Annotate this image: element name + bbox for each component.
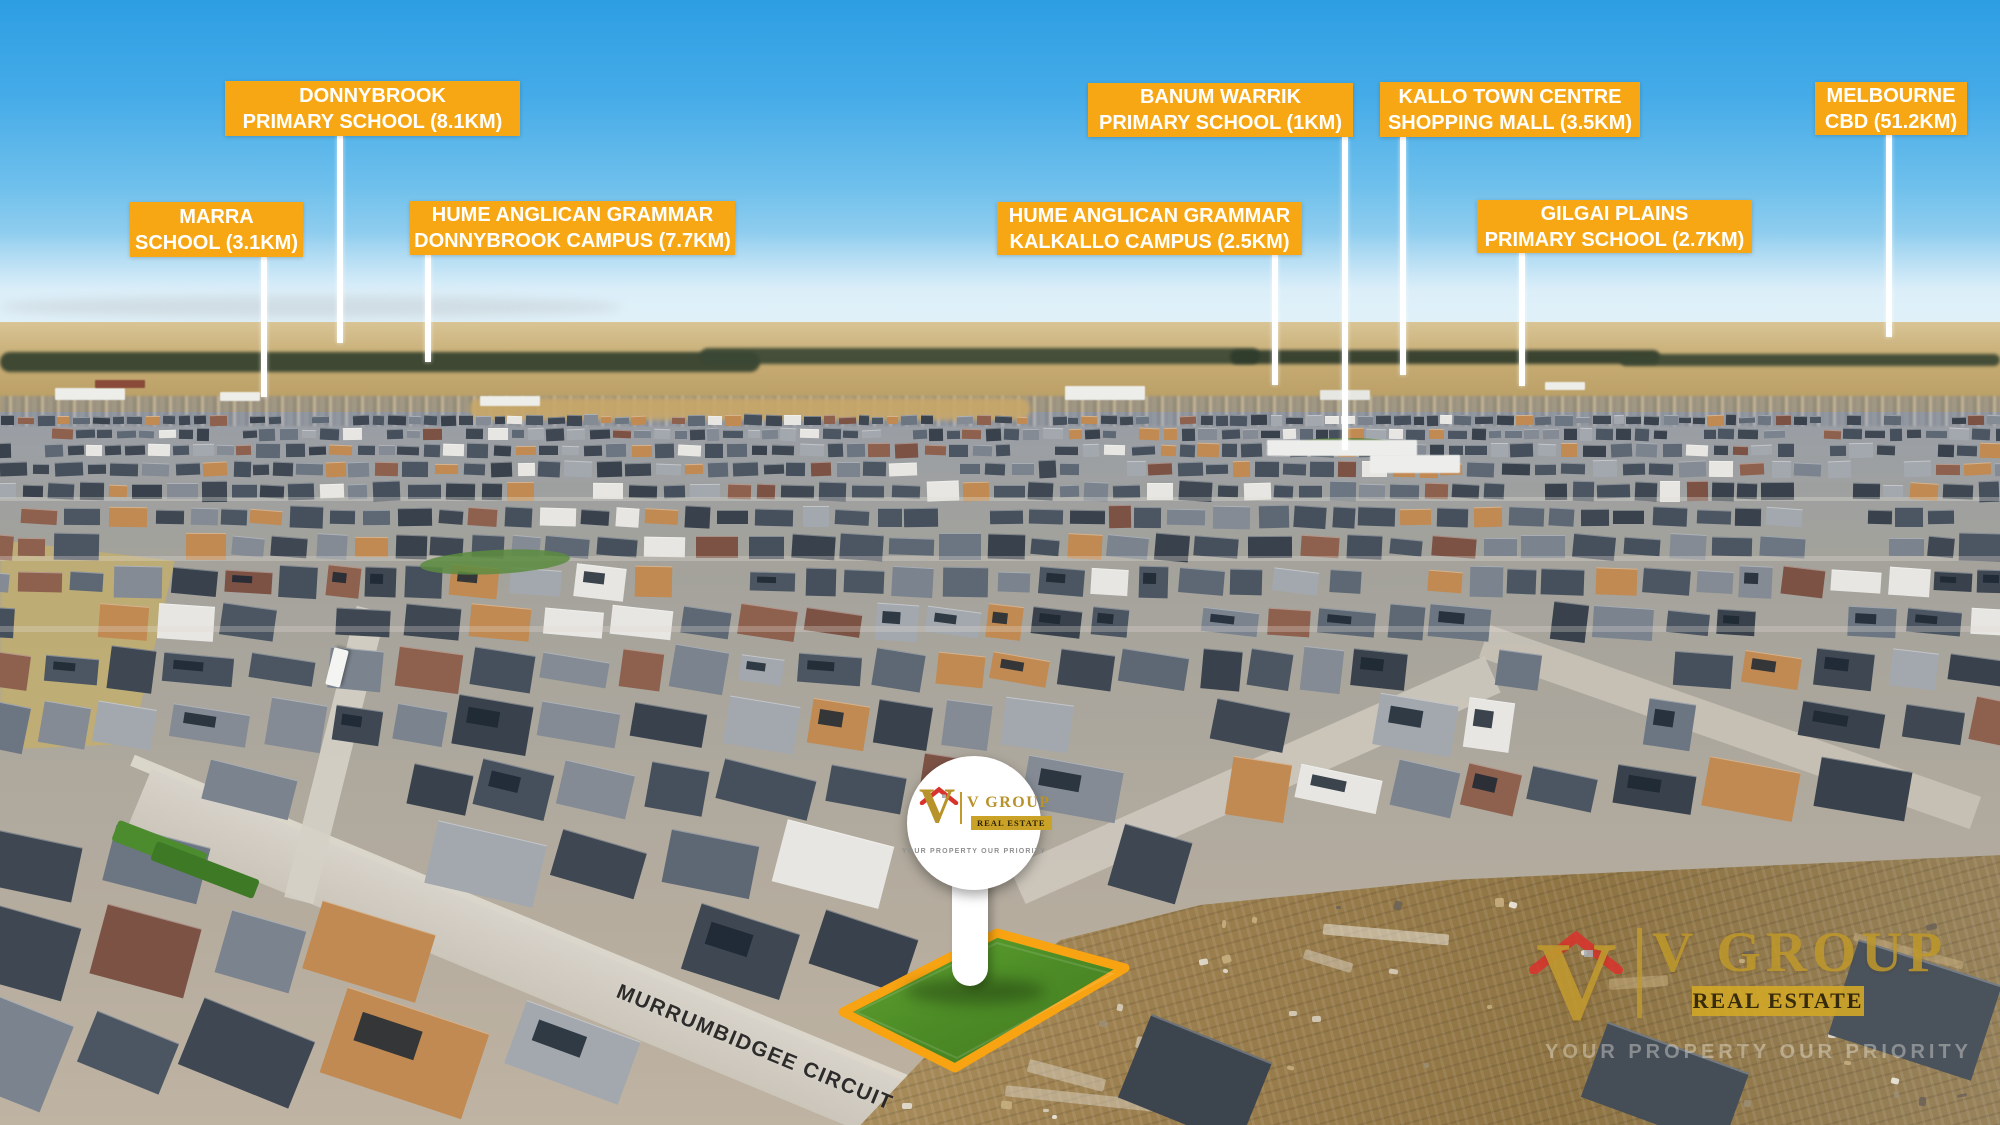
location-label-kallo-town-centre: KALLO TOWN CENTRE SHOPPING MALL (3.5KM) [1380, 82, 1640, 137]
label-line: GILGAI PLAINS [1541, 201, 1689, 227]
logo-tagline: YOUR PROPERTY OUR PRIORITY [913, 848, 1035, 855]
location-label-donnybrook-primary: DONNYBROOK PRIMARY SCHOOL (8.1KM) [225, 81, 520, 136]
logo-divider [1637, 928, 1642, 1018]
label-line: MARRA [179, 204, 253, 230]
location-label-gilgai-plains: GILGAI PLAINS PRIMARY SCHOOL (2.7KM) [1477, 200, 1752, 253]
leader-line-hume-kalkallo [1272, 255, 1278, 385]
leader-line-donnybrook [337, 136, 343, 343]
logo-sub-brand-badge: REAL ESTATE [971, 816, 1052, 830]
label-line: HUME ANGLICAN GRAMMAR [432, 202, 713, 228]
label-line: SHOPPING MALL (3.5KM) [1388, 110, 1632, 136]
label-line: SCHOOL (3.1KM) [135, 230, 298, 256]
label-line: PRIMARY SCHOOL (8.1KM) [243, 109, 503, 135]
property-pin[interactable]: V V GROUP REAL ESTATE YOUR PROPERTY OUR … [907, 756, 1041, 890]
label-line: DONNYBROOK [299, 83, 446, 109]
label-line: PRIMARY SCHOOL (2.7KM) [1485, 227, 1745, 253]
leader-line-banum [1342, 137, 1348, 450]
logo-v-letter: V [1536, 926, 1617, 1038]
label-line: CBD (51.2KM) [1825, 109, 1957, 135]
location-label-melbourne-cbd: MELBOURNE CBD (51.2KM) [1815, 82, 1967, 135]
label-line: BANUM WARRIK [1140, 84, 1301, 110]
aerial-property-photo: V V GROUP REAL ESTATE YOUR PROPERTY OUR … [0, 0, 2000, 1125]
logo-divider [960, 792, 962, 824]
location-label-banum-warrik: BANUM WARRIK PRIMARY SCHOOL (1KM) [1088, 83, 1353, 137]
location-label-hume-donnybrook: HUME ANGLICAN GRAMMAR DONNYBROOK CAMPUS … [410, 201, 735, 255]
label-line: HUME ANGLICAN GRAMMAR [1009, 203, 1290, 229]
logo-v-letter: V [919, 780, 955, 830]
label-line: KALKALLO CAMPUS (2.5KM) [1010, 229, 1290, 255]
vgroup-watermark-logo: V V GROUP REAL ESTATE YOUR PROPERTY OUR … [1490, 878, 2000, 1125]
leader-line-hume-donnybrook [425, 255, 431, 362]
label-line: DONNYBROOK CAMPUS (7.7KM) [414, 228, 731, 254]
leader-line-gilgai [1519, 253, 1525, 386]
logo-brand: V GROUP [1652, 920, 1947, 985]
label-line: KALLO TOWN CENTRE [1399, 84, 1622, 110]
leader-line-melbourne [1886, 135, 1892, 337]
location-label-marra-school: MARRA SCHOOL (3.1KM) [130, 202, 303, 257]
logo-tagline: YOUR PROPERTY OUR PRIORITY [1545, 1041, 1905, 1064]
leader-line-kallo [1400, 137, 1406, 375]
label-line: MELBOURNE [1827, 83, 1956, 109]
leader-line-marra [261, 257, 267, 397]
logo-brand: V GROUP [967, 794, 1051, 812]
location-label-hume-kalkallo: HUME ANGLICAN GRAMMAR KALKALLO CAMPUS (2… [997, 202, 1302, 255]
label-line: PRIMARY SCHOOL (1KM) [1099, 110, 1342, 136]
logo-sub-brand-badge: REAL ESTATE [1692, 986, 1864, 1016]
